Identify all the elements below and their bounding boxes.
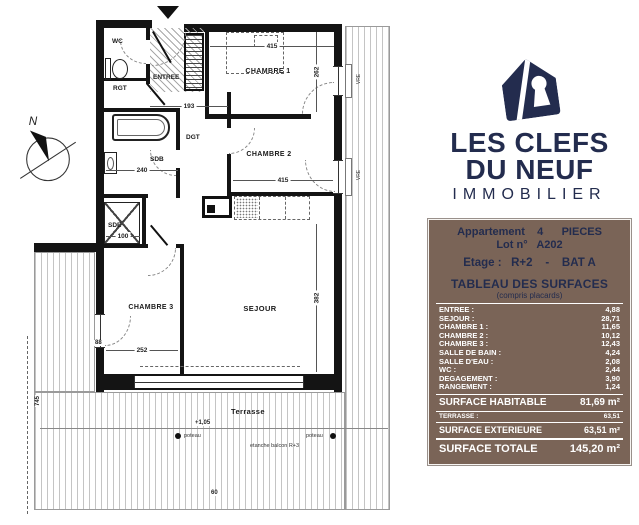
partition-sdb-right-a bbox=[176, 112, 180, 150]
kitchen-divider-1 bbox=[259, 197, 260, 219]
toilet-icon bbox=[105, 56, 129, 82]
terrasse-label: TERRASSE : bbox=[439, 413, 478, 421]
partition-ch1-left bbox=[205, 28, 209, 118]
entrance-arrow-icon bbox=[157, 6, 179, 19]
room-label-wc: WC bbox=[112, 38, 123, 45]
balcony-right-hatch bbox=[345, 26, 390, 510]
surface-row-label: RANGEMENT : bbox=[439, 383, 492, 392]
kitchen-divider-2 bbox=[285, 197, 286, 219]
dimension-382: 382 bbox=[316, 224, 317, 372]
dimension-100: 100 bbox=[106, 236, 140, 237]
door-arc-ch1 bbox=[302, 82, 334, 114]
partition-ch2-left-b bbox=[227, 154, 231, 196]
room-label-sdb: SDB bbox=[150, 156, 164, 163]
terrace-joint-line bbox=[40, 428, 388, 429]
surfaces-box: Appartement 4 PIECES Lot n° A202 Etage :… bbox=[428, 219, 631, 465]
kitchen-counter bbox=[234, 196, 310, 220]
partition-sdb-right-b bbox=[176, 168, 180, 198]
kitchen-appliance bbox=[236, 198, 258, 218]
surface-totale-value: 145,20 m² bbox=[570, 443, 620, 456]
wall-top-left bbox=[96, 20, 152, 28]
closet bbox=[184, 33, 204, 91]
floor-plan: VRE VRE WC ENTREE RGT DGT SDB SDE CHAMBR… bbox=[0, 0, 420, 525]
vre-label-2: VRE bbox=[356, 170, 362, 180]
surface-habitable-label: SURFACE HABITABLE bbox=[439, 397, 547, 409]
surface-exterieure-row: SURFACE EXTERIEURE 63,51 m² bbox=[436, 422, 623, 436]
window-right-1 bbox=[333, 66, 343, 96]
table-subtitle: (compris placards) bbox=[434, 291, 625, 300]
window-arc-sejour bbox=[305, 160, 335, 192]
dimension-193: 193 bbox=[150, 106, 228, 107]
room-label-dgt: DGT bbox=[186, 134, 200, 141]
surface-exterieure-value: 63,51 m² bbox=[584, 425, 620, 436]
duct-square bbox=[207, 205, 215, 213]
door-leaf-ch3 bbox=[150, 225, 168, 246]
dimension-262: 262 bbox=[316, 32, 317, 112]
lot-line: Lot n° A202 bbox=[434, 239, 625, 252]
poteau-label-2: poteau bbox=[306, 433, 323, 439]
partition-ch2-left-a bbox=[227, 92, 231, 128]
table-title: TABLEAU DES SURFACES bbox=[434, 278, 625, 291]
window-bay-sejour bbox=[134, 376, 304, 388]
surface-habitable-row: SURFACE HABITABLE 81,69 m² bbox=[436, 394, 623, 409]
poteau-dot-2 bbox=[330, 433, 336, 439]
property-dashed-line bbox=[27, 336, 28, 514]
room-label-chambre3: CHAMBRE 3 bbox=[120, 304, 182, 311]
bathtub-icon bbox=[112, 114, 170, 141]
bay-slide-line bbox=[140, 366, 300, 367]
room-label-rgt: RGT bbox=[113, 85, 127, 92]
surface-habitable-value: 81,69 m² bbox=[580, 397, 620, 409]
agency-logo: LES CLEFS DU NEUF IMMOBILIER bbox=[420, 56, 639, 204]
partition-ch1-bottom bbox=[205, 114, 311, 119]
surface-totale-row: SURFACE TOTALE 145,20 m² bbox=[436, 438, 623, 456]
apartment-line: Appartement 4 PIECES bbox=[434, 226, 625, 239]
terrasse-value: 63,51 bbox=[604, 413, 620, 421]
dimension-88: 88 bbox=[94, 340, 103, 346]
dimension-415-ch2: 415 bbox=[233, 180, 333, 181]
house-keyhole-logo-icon bbox=[492, 56, 568, 124]
window-arc-ch3 bbox=[105, 316, 131, 346]
room-label-chambre2: CHAMBRE 2 bbox=[231, 151, 307, 158]
dimension-745: 745 bbox=[35, 395, 41, 407]
toilet-bowl bbox=[112, 59, 128, 79]
terrasse-row: TERRASSE : 63,51 bbox=[436, 411, 623, 421]
surface-row: RANGEMENT : 1,24 bbox=[436, 383, 623, 392]
bathtub-inner bbox=[117, 119, 165, 136]
window-glass-line bbox=[338, 161, 339, 193]
terrace-left-hatch bbox=[34, 252, 95, 392]
compass-icon: N bbox=[16, 112, 80, 198]
logo-line-3: IMMOBILIER bbox=[420, 186, 639, 204]
room-label-terrasse: Terrasse bbox=[210, 407, 286, 416]
room-label-chambre1: CHAMBRE 1 bbox=[230, 68, 306, 75]
terrace-wall-left bbox=[34, 243, 97, 252]
dimension-240: 240 bbox=[106, 170, 178, 171]
north-label: N bbox=[29, 115, 38, 128]
partition-ch3-top-a bbox=[104, 244, 148, 248]
vre-label-1: VRE bbox=[356, 74, 362, 84]
dimension-252: 252 bbox=[106, 350, 178, 351]
kitchen-duct-box bbox=[202, 196, 232, 218]
surfaces-table: ENTREE : 4,88 SEJOUR : 28,71 CHAMBRE 1 :… bbox=[436, 303, 623, 392]
logo-line-2: DU NEUF bbox=[420, 156, 639, 183]
shutter-box-2 bbox=[345, 158, 352, 196]
partition-sde-right bbox=[142, 198, 146, 246]
etanche-label: etanche balcon R+3 bbox=[250, 443, 299, 449]
surface-exterieure-label: SURFACE EXTERIEURE bbox=[439, 425, 542, 436]
etage-line: Etage : R+2 - BAT A bbox=[434, 256, 625, 270]
window-glass-line bbox=[338, 67, 339, 95]
surface-totale-label: SURFACE TOTALE bbox=[439, 443, 538, 456]
surface-row: SALLE D'EAU : 2,08 bbox=[436, 358, 623, 367]
door-arc-ch3 bbox=[148, 248, 176, 276]
poteau-dot-1 bbox=[175, 433, 181, 439]
level-label: +1,05 bbox=[194, 420, 211, 426]
room-label-sde: SDE bbox=[108, 222, 121, 229]
info-panel: LES CLEFS DU NEUF IMMOBILIER Appartement… bbox=[420, 0, 639, 525]
room-label-entree: ENTREE bbox=[153, 74, 179, 81]
partition-sdb-top bbox=[104, 108, 180, 112]
window-glass-line bbox=[135, 382, 303, 383]
door-arc-sdb bbox=[150, 150, 176, 176]
shutter-box-1 bbox=[345, 64, 352, 98]
logo-line-1: LES CLEFS bbox=[420, 129, 639, 156]
surface-row-value: 1,24 bbox=[605, 383, 620, 392]
sink-basin bbox=[107, 157, 114, 170]
room-label-sejour: SEJOUR bbox=[222, 304, 298, 313]
terrace-bottom-hatch bbox=[34, 392, 345, 510]
toilet-tank bbox=[105, 58, 111, 80]
dimension-60: 60 bbox=[210, 490, 219, 496]
poteau-label-1: poteau bbox=[184, 433, 201, 439]
